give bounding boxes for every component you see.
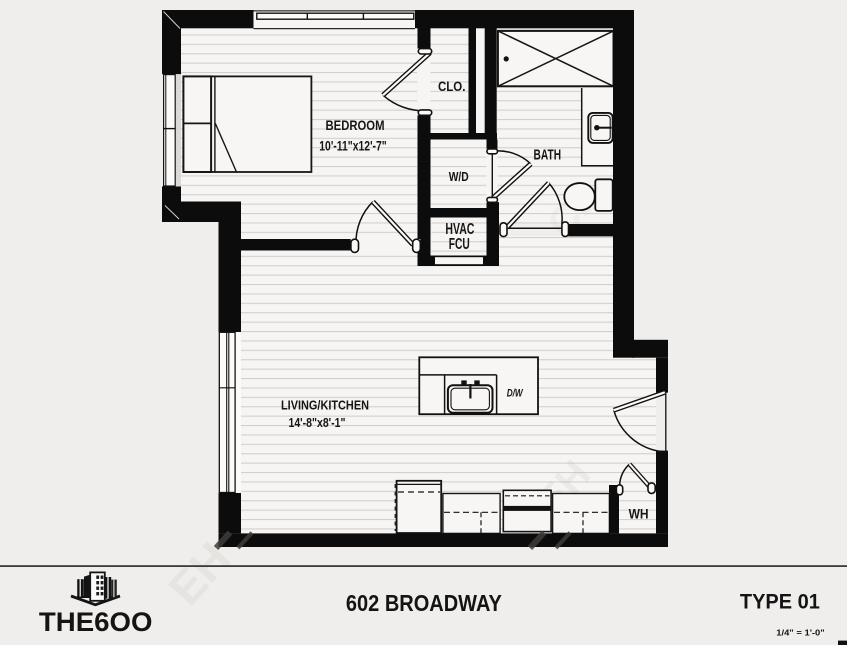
svg-text:WH: WH [629,507,649,522]
svg-text:602 BROADWAY: 602 BROADWAY [346,590,502,616]
svg-text:14'-8"x8'-1": 14'-8"x8'-1" [289,416,346,430]
svg-text:W/D: W/D [449,170,469,184]
svg-text:BATH: BATH [534,148,562,164]
svg-text:D/W: D/W [507,387,524,399]
svg-text:CLO.: CLO. [438,78,466,94]
svg-text:1/4" = 1'-0": 1/4" = 1'-0" [776,628,825,637]
svg-text:TYPE 01: TYPE 01 [740,590,820,614]
svg-text:THE6OO: THE6OO [39,607,153,637]
svg-text:LIVING/KITCHEN: LIVING/KITCHEN [281,398,369,413]
svg-text:BEDROOM: BEDROOM [326,117,385,133]
svg-text:FCU: FCU [449,236,470,253]
svg-text:10'-11"x12'-7": 10'-11"x12'-7" [319,138,387,154]
